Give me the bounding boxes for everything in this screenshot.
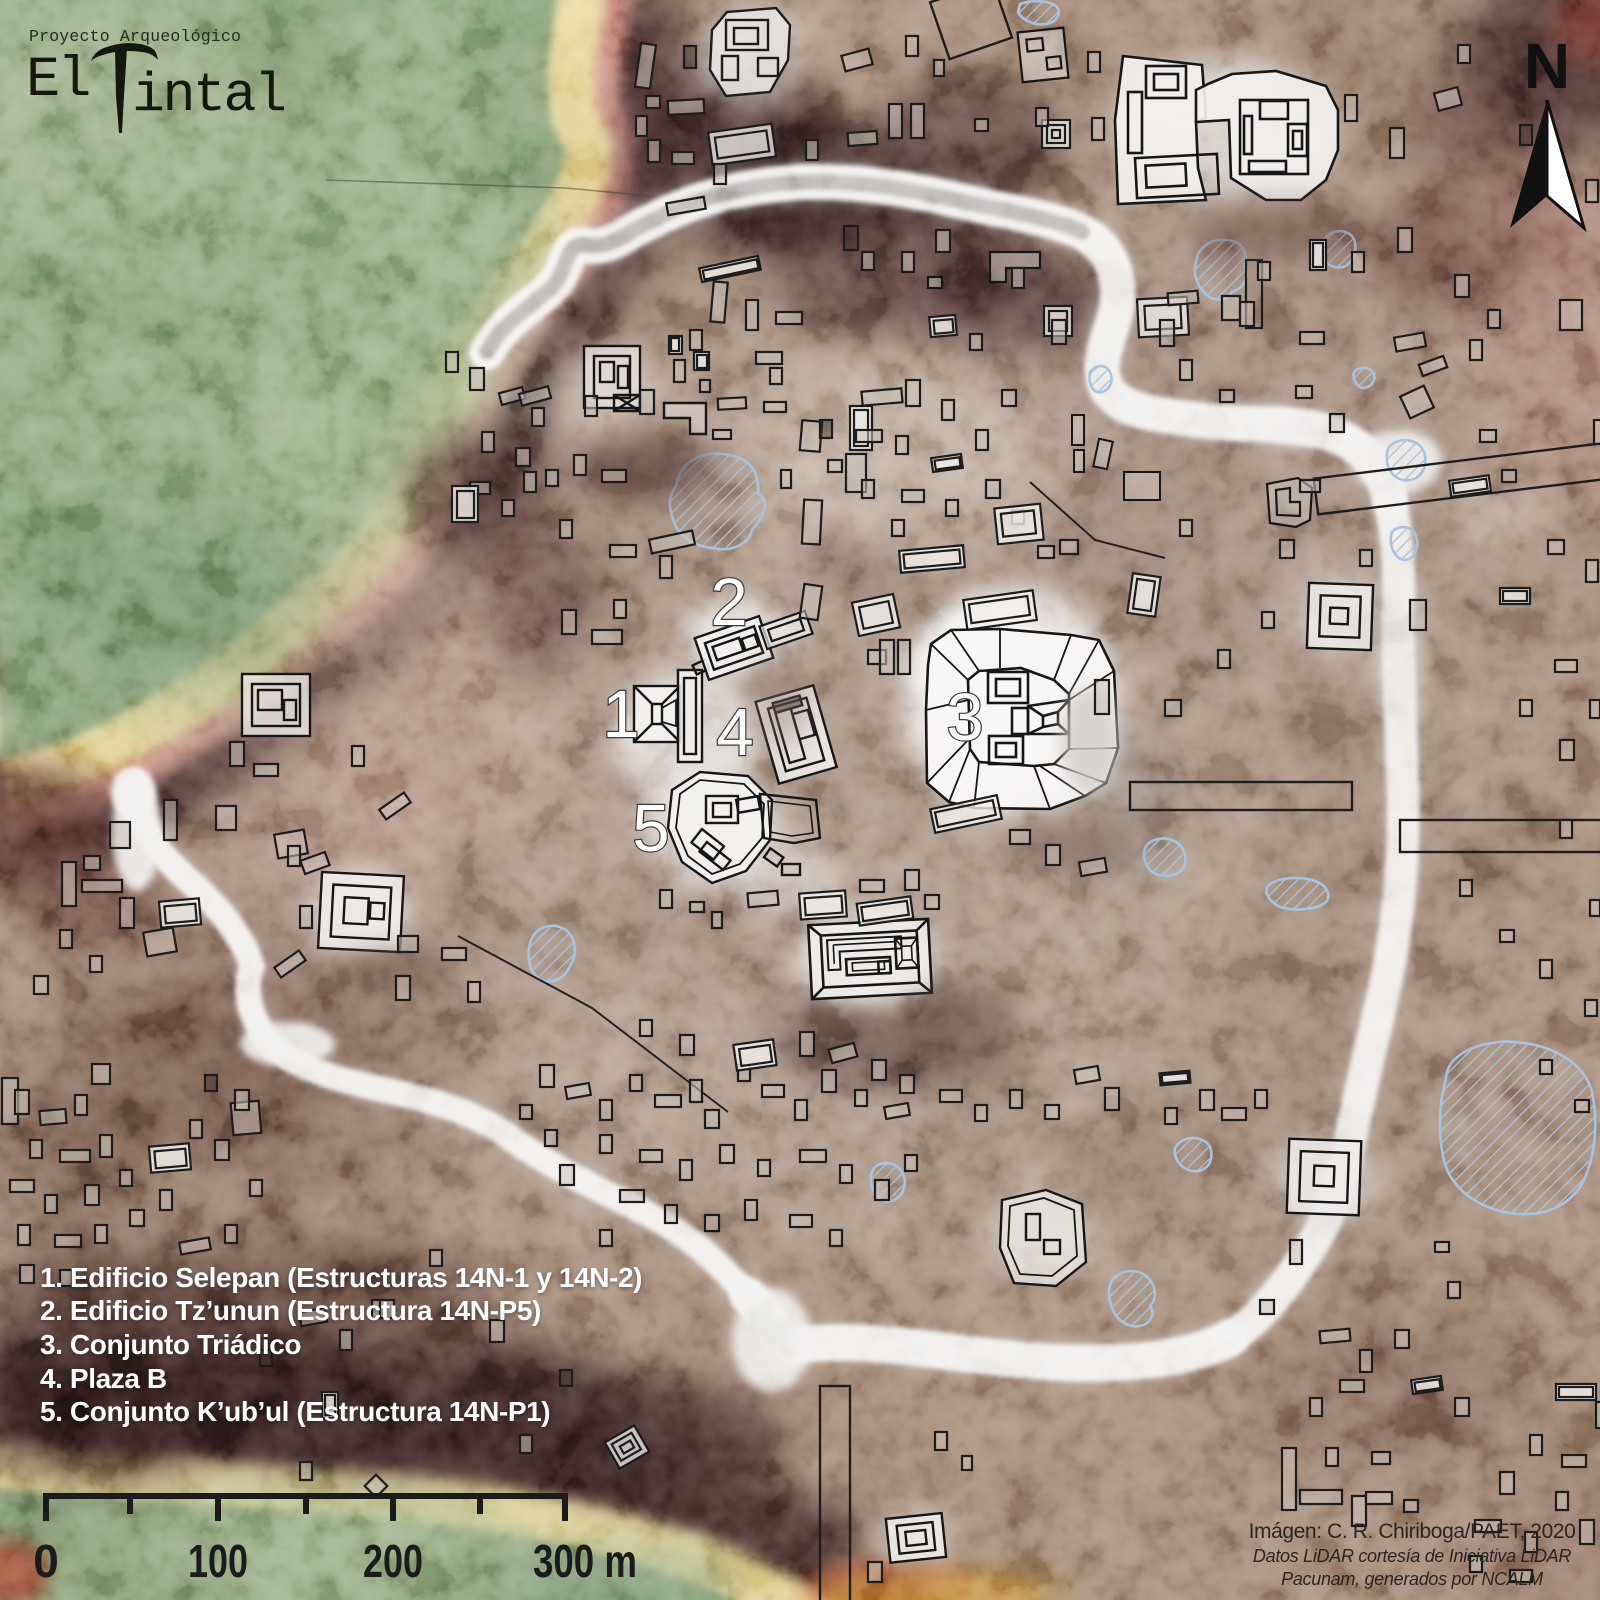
svg-text:0: 0 [33,1535,59,1587]
svg-text:300 m: 300 m [533,1535,637,1587]
svg-text:3. Conjunto Triádico: 3. Conjunto Triádico [40,1329,301,1360]
svg-text:N: N [1524,30,1570,102]
svg-text:1. Edificio Selepan (Estructur: 1. Edificio Selepan (Estructuras 14N-1 y… [40,1262,642,1293]
svg-text:2: 2 [710,565,747,640]
svg-text:3: 3 [946,680,983,755]
svg-text:Datos LiDAR cortesía de Inicia: Datos LiDAR cortesía de Iniciativa LiDAR [1253,1546,1571,1566]
svg-text:4: 4 [716,695,753,770]
svg-text:2. Edificio Tz’unun (Estructur: 2. Edificio Tz’unun (Estructura 14N-P5) [40,1295,541,1326]
svg-text:100: 100 [188,1535,248,1587]
svg-text:Imágen: C. R. Chiriboga/PAET,: Imágen: C. R. Chiriboga/PAET, 2020 [1249,1520,1576,1543]
svg-text:intal: intal [132,64,285,127]
svg-text:5. Conjunto K’ub’ul (Estructur: 5. Conjunto K’ub’ul (Estructura 14N-P1) [40,1396,550,1427]
svg-text:El: El [26,49,89,113]
svg-text:200: 200 [363,1535,423,1587]
svg-text:5: 5 [632,791,669,866]
svg-text:Pacunam, generados por NCALM: Pacunam, generados por NCALM [1281,1569,1543,1589]
svg-text:1: 1 [602,677,639,752]
svg-text:Proyecto Arqueológico: Proyecto Arqueológico [29,27,241,46]
svg-text:4. Plaza B: 4. Plaza B [40,1363,167,1394]
